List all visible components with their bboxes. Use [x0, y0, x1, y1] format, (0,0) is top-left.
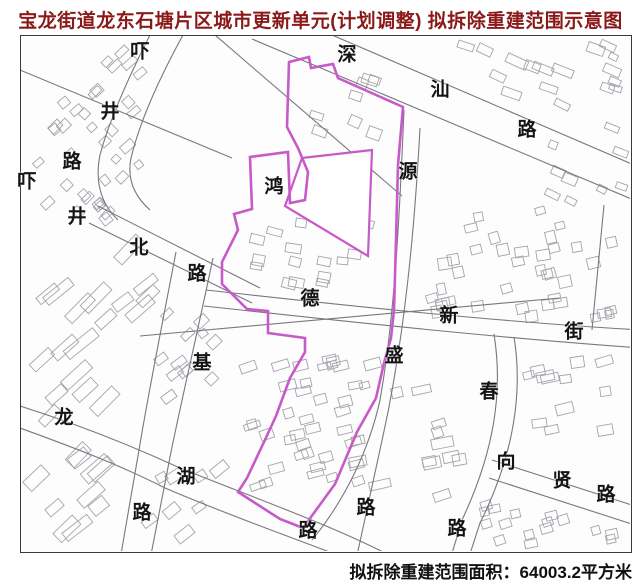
building-footprint	[501, 86, 522, 101]
building-footprint	[194, 313, 210, 329]
road-label-xiangxian-road-0: 向	[496, 453, 515, 472]
building-footprint	[464, 223, 478, 233]
building-footprint	[296, 438, 311, 450]
building-footprint	[309, 110, 324, 121]
building-footprint	[479, 507, 489, 517]
building-footprint	[81, 191, 94, 204]
building-footprint	[595, 355, 614, 368]
building-footprint	[204, 372, 218, 386]
building-footprint	[107, 59, 122, 73]
building-footprint	[480, 518, 492, 529]
building-footprint	[422, 456, 441, 470]
building-footprint	[570, 356, 585, 369]
building-footprint	[442, 450, 460, 463]
road-label-xiajingbei-road-0: 吓	[17, 173, 36, 192]
building-footprint	[111, 154, 121, 164]
building-footprint	[252, 254, 266, 267]
building-footprint	[524, 529, 535, 540]
building-footprint	[161, 308, 174, 321]
building-footprint	[51, 334, 79, 361]
building-footprint	[544, 188, 560, 201]
building-footprint	[171, 355, 188, 370]
building-footprint	[557, 514, 570, 526]
building-footprint	[539, 522, 553, 534]
building-footprint	[60, 179, 73, 192]
building-footprint	[605, 236, 617, 248]
building-footprint	[555, 221, 566, 230]
building-footprint	[597, 424, 614, 437]
building-footprint	[87, 122, 98, 133]
building-footprint	[550, 165, 566, 178]
building-footprint	[608, 52, 618, 61]
building-footprint	[63, 328, 99, 360]
road-label-hong-label-0: 鸿	[264, 178, 283, 197]
building-footprint	[133, 67, 147, 80]
road-label-xiajing-road-0: 吓	[130, 43, 149, 62]
building-footprint	[489, 69, 506, 83]
road-label-shenshan-road-2: 路	[517, 121, 536, 140]
building-footprint	[87, 456, 115, 482]
building-footprint	[349, 90, 363, 102]
road-label-dexin-street-1: 新	[439, 307, 458, 326]
building-footprint	[112, 292, 135, 312]
building-footprint	[101, 56, 113, 68]
building-footprint	[351, 475, 365, 487]
building-footprint	[555, 401, 574, 415]
building-footprint	[78, 107, 90, 119]
road-label-yuansheng-road-0: 源	[398, 163, 417, 182]
excluded-parcel	[285, 150, 372, 256]
building-footprint	[318, 451, 333, 464]
building-footprint	[437, 257, 452, 270]
building-footprint	[558, 275, 573, 289]
building-footprint	[541, 268, 553, 279]
building-footprint	[523, 370, 535, 380]
building-footprint	[602, 63, 621, 78]
building-footprint	[500, 283, 512, 294]
building-footprint	[23, 465, 50, 492]
building-footprint	[53, 515, 81, 543]
road-ji-east-edge	[150, 258, 213, 560]
building-footprint	[206, 334, 222, 350]
building-footprint	[368, 74, 381, 85]
building-footprint	[80, 282, 112, 314]
building-footprint	[115, 45, 129, 59]
boundary-line-decor-4	[592, 205, 604, 330]
building-footprint	[105, 123, 119, 137]
road-label-xiajingbei-road-2: 北	[129, 239, 148, 258]
building-footprint	[433, 489, 452, 503]
building-footprint	[571, 242, 582, 253]
building-footprint	[29, 348, 54, 372]
building-footprint	[525, 310, 538, 323]
road-label-xiajing-road-1: 井	[100, 103, 119, 122]
building-footprint	[250, 480, 267, 491]
building-footprint	[317, 256, 331, 267]
building-footprint	[268, 462, 285, 475]
building-footprint	[505, 53, 529, 70]
road-label-dexin-street-0: 德	[300, 290, 319, 309]
road-shenshan-north-edge	[332, 35, 641, 168]
building-footprint	[347, 114, 362, 128]
building-footprint	[496, 243, 509, 256]
building-footprint	[181, 328, 195, 342]
building-footprint	[544, 230, 556, 244]
building-footprint	[425, 293, 438, 304]
road-label-ji-road-0: 基	[192, 354, 211, 373]
building-footprint	[133, 273, 158, 295]
building-footprint	[564, 196, 577, 207]
map-canvas	[0, 0, 641, 588]
building-footprint	[338, 395, 353, 408]
road-label-xiajingbei-road-1: 井	[67, 208, 86, 227]
building-footprint	[161, 389, 177, 404]
road-label-chun-road-1: 路	[447, 520, 466, 539]
building-footprint	[95, 308, 117, 329]
building-footprint	[239, 360, 257, 374]
building-footprint	[457, 40, 475, 52]
road-longhu-north-edge	[20, 406, 385, 553]
building-footprint	[166, 365, 183, 381]
building-footprint	[411, 384, 431, 396]
road-label-xiangxian-road-1: 贤	[552, 472, 571, 491]
building-footprint	[65, 442, 91, 468]
road-label-longhu-road-2: 路	[298, 522, 317, 541]
building-footprint	[249, 233, 265, 245]
building-footprint	[283, 407, 295, 419]
road-label-longhu-road-0: 龙	[54, 409, 73, 428]
building-footprint	[33, 157, 45, 168]
building-footprint	[312, 125, 328, 138]
building-footprint	[61, 360, 93, 391]
building-footprint	[436, 283, 446, 295]
building-footprint	[561, 172, 578, 186]
building-footprint	[317, 362, 331, 371]
building-footprint	[600, 386, 612, 397]
building-footprint	[536, 249, 551, 261]
building-footprint	[88, 86, 102, 100]
building-footprint	[259, 477, 273, 489]
building-footprint	[447, 253, 460, 266]
road-label-yuansheng-road-2: 路	[356, 499, 375, 518]
building-footprint	[431, 418, 446, 430]
building-footprint	[493, 535, 505, 547]
building-footprint	[539, 82, 558, 95]
building-footprint	[134, 160, 144, 170]
building-footprint	[266, 226, 283, 237]
building-footprint	[72, 377, 98, 402]
building-footprint	[115, 170, 129, 184]
building-footprint	[271, 359, 289, 372]
building-footprint	[548, 243, 560, 254]
building-footprint	[604, 122, 620, 133]
building-footprint	[45, 498, 64, 516]
building-footprint	[119, 138, 135, 154]
building-footprint	[313, 393, 327, 405]
building-footprint	[470, 244, 483, 255]
building-footprint	[337, 424, 353, 435]
building-footprint	[305, 422, 321, 434]
building-footprint	[317, 271, 331, 283]
building-footprint	[586, 42, 605, 57]
building-footprint	[535, 206, 546, 216]
building-footprint	[209, 460, 229, 479]
building-footprint	[615, 182, 628, 191]
building-footprint	[307, 468, 324, 479]
building-footprint	[40, 196, 55, 210]
building-footprint	[43, 277, 74, 305]
road-label-xiangxian-road-2: 路	[596, 486, 615, 505]
building-footprint	[548, 140, 558, 150]
building-footprint	[88, 495, 110, 516]
building-footprint	[337, 257, 348, 265]
building-footprint	[359, 381, 370, 390]
building-footprint	[488, 231, 500, 244]
building-footprint	[334, 404, 351, 417]
road-label-yuansheng-road-1: 盛	[384, 347, 403, 366]
building-footprint	[545, 510, 558, 521]
building-footprint	[510, 509, 521, 519]
building-footprint	[551, 63, 574, 78]
building-footprint	[452, 266, 464, 279]
building-footprint	[162, 502, 181, 520]
road-label-dexin-street-2: 街	[564, 323, 583, 342]
building-footprint	[499, 518, 512, 530]
building-footprint	[541, 299, 554, 311]
road-label-chun-road-0: 春	[479, 383, 498, 402]
building-footprint	[516, 302, 530, 314]
building-footprint	[99, 174, 111, 186]
building-footprint	[122, 95, 135, 109]
building-footprint	[80, 454, 112, 484]
building-footprint	[295, 218, 307, 228]
building-footprint	[285, 243, 302, 254]
road-label-xiajingbei-road-3: 路	[187, 265, 206, 284]
building-footprint	[65, 293, 96, 324]
building-footprint	[89, 386, 120, 417]
building-footprint	[363, 357, 381, 371]
building-footprint	[299, 414, 314, 425]
road-label-xiajing-road-2: 路	[62, 153, 81, 172]
road-label-shenshan-road-1: 汕	[430, 81, 449, 100]
building-footprint	[590, 313, 601, 323]
building-footprint	[596, 184, 607, 194]
road-label-shenshan-road-0: 深	[337, 46, 356, 65]
building-footprint	[473, 212, 483, 222]
building-footprint	[78, 189, 91, 202]
road-label-ji-road-1: 路	[132, 504, 151, 523]
road-label-longhu-road-1: 湖	[176, 468, 195, 487]
building-footprint	[174, 524, 195, 544]
boundary-line-decor-1	[20, 70, 232, 158]
building-footprint	[125, 295, 155, 323]
area-text: 拟拆除重建范围面积：64003.2平方米	[0, 558, 632, 583]
building-footprint	[591, 525, 601, 535]
planning-map-page: 宝龙街道龙东石塘片区城市更新单元(计划调整) 拟拆除重建范围示意图	[0, 0, 641, 588]
building-footprint	[476, 43, 493, 57]
building-footprint	[288, 256, 301, 268]
building-footprint	[57, 96, 70, 109]
building-footprint	[559, 374, 571, 383]
building-footprint	[366, 126, 383, 141]
building-footprint	[532, 61, 554, 76]
building-footprint	[554, 98, 571, 111]
